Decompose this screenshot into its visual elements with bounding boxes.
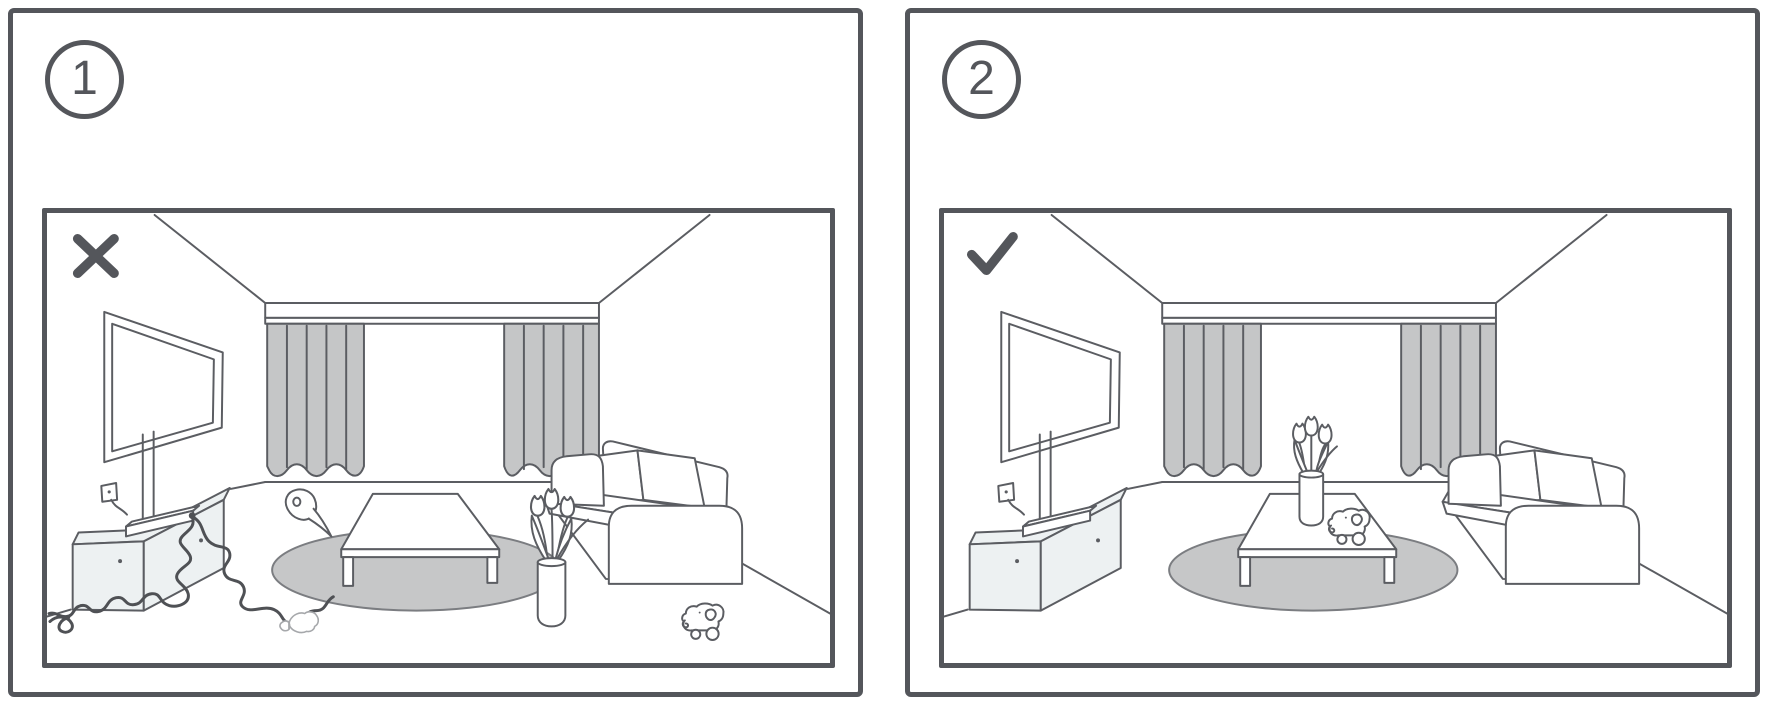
living-room-scene-illustration: [944, 213, 1727, 663]
step-2-number: 2: [968, 55, 995, 103]
figure-canvas: 1: [0, 0, 1770, 705]
outlet-cable: [1008, 500, 1024, 515]
toy-elephant-on-floor: [682, 604, 723, 640]
tv-cabinet: [73, 488, 230, 611]
step-1-badge: 1: [45, 40, 124, 119]
sofa: [1443, 441, 1639, 584]
picture-frame: [104, 312, 222, 462]
window-valance: [1162, 303, 1496, 324]
scene-frame-1: [42, 208, 835, 668]
tulip-icon: [1293, 417, 1332, 444]
sofa: [546, 441, 742, 584]
tv-cabinet: [970, 488, 1127, 611]
wall-outlet: [101, 483, 127, 515]
right-curtain: [504, 324, 599, 476]
panel-step-2: 2: [905, 8, 1760, 697]
curtained-window: [267, 324, 599, 476]
living-room-scene-illustration: [47, 213, 830, 663]
step-2-badge: 2: [942, 40, 1021, 119]
picture-frame: [1001, 312, 1119, 462]
right-curtain: [1401, 324, 1496, 476]
window-valance: [265, 303, 599, 324]
step-1-number: 1: [71, 55, 98, 103]
outlet-cable: [111, 500, 127, 515]
left-curtain: [267, 324, 364, 476]
plastic-bottle: [280, 612, 318, 633]
toilet-paper-roll: [286, 489, 332, 536]
check-icon: [972, 237, 1013, 271]
wall-outlet: [998, 483, 1024, 515]
cross-icon: [78, 239, 115, 274]
left-curtain: [1164, 324, 1261, 476]
panel-step-1: 1: [8, 8, 863, 697]
scene-frame-2: [939, 208, 1732, 668]
